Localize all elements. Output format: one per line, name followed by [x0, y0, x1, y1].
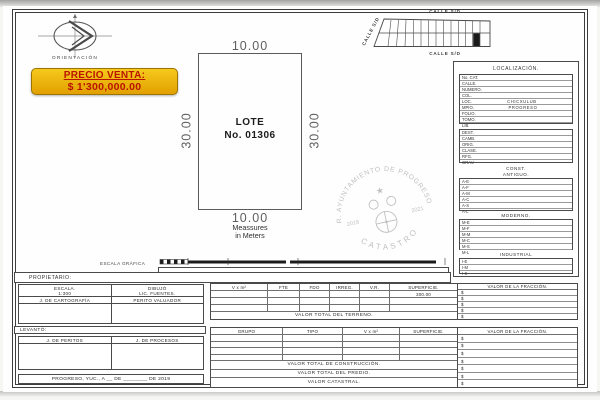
field-label: A-E	[460, 179, 469, 184]
seal-year-left: 2018	[347, 220, 360, 228]
seal-star-icon: ★	[375, 185, 385, 196]
fraction-row: $	[458, 314, 577, 319]
table-cell	[360, 291, 390, 297]
field-label: CALLE.	[460, 81, 476, 86]
fraction-row: $	[458, 373, 577, 381]
table-cell	[400, 342, 457, 348]
table-cell	[211, 291, 268, 297]
orientation-label: ORIENTACIÓN	[38, 56, 112, 61]
lot-title-line1: LOTE	[198, 117, 302, 130]
seal-emblem-icon	[368, 196, 402, 235]
field-label: M-E	[460, 220, 470, 225]
construction-table: GRUPO TIPO V x m² SUPERFICIE.	[210, 327, 578, 388]
industrial-title: INDUSTRIAL	[453, 252, 579, 257]
signature-space	[19, 344, 112, 369]
table-cell	[400, 355, 457, 361]
field-label: M-M	[460, 232, 470, 237]
field-label: NUMERO.	[460, 87, 482, 92]
escala-value: 1:300	[19, 291, 112, 296]
price-banner-amount: $ 1'300,000.00	[68, 81, 142, 93]
currency-sign: $	[458, 302, 464, 307]
field-label: RFG.	[460, 154, 472, 159]
field-label: ORIG.	[460, 142, 474, 147]
currency-sign: $	[458, 351, 464, 356]
admin-fields: DEST. CAMB. ORIG. CLASE. RFG. GRAV.	[459, 129, 573, 163]
table-cell	[300, 298, 330, 304]
table-cell	[268, 298, 300, 304]
svg-text:CATASTRO: CATASTRO	[358, 224, 423, 257]
field-label: M-F	[460, 226, 469, 231]
fraction-row: $	[458, 350, 577, 358]
table-cell	[300, 291, 330, 297]
table-cell	[211, 335, 283, 341]
signature-space	[112, 304, 204, 323]
units-note-line2: in Meters	[198, 232, 302, 240]
currency-sign: $	[458, 290, 464, 295]
table-cell	[343, 355, 400, 361]
levanto-label: LEVANTÓ:	[15, 328, 47, 333]
currency-sign: $	[458, 296, 464, 301]
seal-arc-bottom-text: CATASTRO	[358, 224, 423, 257]
currency-sign: $	[458, 359, 464, 364]
table-cell	[211, 355, 283, 361]
units-note: Meassures in Meters	[198, 224, 302, 241]
fraction-row: $	[458, 343, 577, 351]
currency-sign: $	[458, 336, 464, 341]
table-cell	[211, 342, 283, 348]
col-header: FDO	[300, 284, 330, 290]
antiguo-title: ANTIGUO.	[453, 172, 579, 177]
table-cell	[400, 335, 457, 341]
field-label: A-C	[460, 197, 469, 202]
field-label: A-M	[460, 191, 470, 196]
industrial-fields: I-E I-M I-S	[459, 258, 573, 274]
field-label: TOMO.	[460, 117, 476, 122]
signatories-table: J. DE PERITOS J. DE PROCESOS	[18, 336, 204, 370]
fraction-row: $	[458, 358, 577, 366]
table-cell	[283, 348, 343, 354]
currency-sign: $	[458, 308, 464, 313]
field-label: I-M	[460, 265, 468, 270]
field-label: I-E	[460, 259, 467, 264]
table-cell	[343, 335, 400, 341]
credits-table: ESCALA. DIBUJÓ 1:300 LIC. FUENTES. J. DE…	[18, 284, 204, 324]
currency-sign: $	[458, 381, 464, 386]
loc-row: I-S	[460, 271, 572, 276]
lot-dim-top: 10.00	[198, 39, 302, 53]
lot-dim-left: 30.00	[180, 107, 193, 155]
table-cell	[330, 305, 360, 311]
field-label: I-S	[460, 271, 467, 276]
highlighted-lot-cell	[473, 33, 480, 46]
procesos-label: J. DE PROCESOS	[112, 337, 204, 343]
field-label: LOC.	[460, 99, 472, 104]
block-map: CALLE S/D CALLE S/D CALLE S/D	[350, 2, 498, 58]
table-cell	[283, 342, 343, 348]
field-label: FOLIO.	[460, 111, 476, 116]
table-cell	[268, 291, 300, 297]
terrain-total-label: VALOR TOTAL DEL TERRENO.	[211, 312, 457, 319]
terrain-table: V x m² FTE FDO IRREG. V.R. SUPERFICIE. 3…	[210, 283, 578, 320]
col-header: V x m²	[343, 328, 400, 334]
field-label: A-F	[460, 185, 469, 190]
field-label: LIB.	[460, 123, 469, 128]
currency-sign: $	[458, 374, 464, 379]
owner-row: PROPIETARIO:	[14, 272, 451, 283]
field-label: CLASE.	[460, 148, 477, 153]
table-cell	[390, 305, 457, 311]
table-cell	[330, 298, 360, 304]
fraction-row: $	[458, 380, 577, 387]
const-title: CONST.	[453, 166, 579, 171]
price-banner: PRECIO VENTA: $ 1'300,000.00	[31, 68, 178, 95]
col-header: SUPERFICIE.	[390, 284, 457, 290]
table-cell	[283, 355, 343, 361]
field-label: A-S	[460, 203, 469, 208]
table-cell	[400, 348, 457, 354]
field-value: CHICXULUB	[472, 99, 572, 104]
currency-sign: $	[458, 314, 464, 319]
lot-title: LOTE No. 01306	[198, 117, 302, 142]
table-cell	[343, 342, 400, 348]
field-label: CAMB.	[460, 136, 475, 141]
owner-label: PROPIETARIO:	[15, 275, 72, 281]
table-cell	[360, 305, 390, 311]
street-label-top: CALLE S/D	[429, 9, 460, 14]
levanto-row: LEVANTÓ:	[14, 326, 206, 334]
signature-space	[19, 304, 112, 323]
table-cell	[268, 305, 300, 311]
fraction-header: VALOR DE LA FRACCIÓN.	[458, 328, 577, 335]
col-header: FTE	[268, 284, 300, 290]
lot-dim-right: 30.00	[308, 107, 321, 155]
field-label: No. CAT.	[460, 75, 478, 80]
localization-title: LOCALIZACIÓN.	[453, 66, 579, 72]
localization-fields: No. CAT. CALLE. NUMERO. COL. LOC.CHICXUL…	[459, 74, 573, 124]
col-header: V.R.	[360, 284, 390, 290]
moderno-fields: M-E M-F M-M M-C M-S M-L	[459, 219, 573, 250]
currency-sign: $	[458, 343, 464, 348]
table-cell	[283, 335, 343, 341]
col-header: V x m²	[211, 284, 268, 290]
col-header: IRREG.	[330, 284, 360, 290]
table-cell	[390, 298, 457, 304]
cartografia-label: J. DE CARTOGRAFÍA	[19, 297, 112, 303]
perito-label: PERITO VALUADOR	[112, 297, 204, 303]
lot-title-line2: No. 01306	[198, 130, 302, 143]
table-cell	[360, 298, 390, 304]
superficie-value: 300.00	[390, 291, 457, 297]
street-label-left: CALLE S/D	[361, 16, 380, 46]
compass-icon	[36, 12, 114, 58]
field-label: M-S	[460, 244, 470, 249]
table-cell	[211, 305, 268, 311]
col-header: GRUPO	[211, 328, 283, 334]
table-cell	[211, 348, 283, 354]
table-cell	[211, 298, 268, 304]
date-line: PROGRESO, YUC., A __ DE ________ DE 2019	[52, 377, 170, 382]
seal-year-right: 2021	[411, 206, 424, 214]
graphic-scale-label: ESCALA GRÁFICA	[100, 261, 158, 266]
loc-row: LIB.	[460, 123, 572, 128]
field-value: PROGRESO	[474, 105, 572, 110]
catastro-seal: R. AYUNTAMIENTO DE PROGRESO CATASTRO 201…	[326, 156, 444, 274]
antiguo-fields: A-E A-F A-M A-C A-S A-L	[459, 178, 573, 211]
col-header: TIPO	[283, 328, 343, 334]
catastral-value-label: VALOR CATASTRAL.	[211, 378, 457, 387]
price-banner-title: PRECIO VENTA:	[64, 70, 146, 81]
field-label: DEST.	[460, 130, 474, 135]
street-label-bottom: CALLE S/D	[429, 51, 460, 56]
field-label: COL.	[460, 93, 472, 98]
moderno-title: MODERNO.	[453, 213, 579, 218]
field-label: M-C	[460, 238, 470, 243]
field-label: MPIO.	[460, 105, 474, 110]
table-cell	[300, 305, 330, 311]
peritos-label: J. DE PERITOS	[19, 337, 112, 343]
predio-total-label: VALOR TOTAL DEL PREDIO.	[211, 370, 457, 379]
col-header: SUPERFICIE.	[400, 328, 457, 334]
fraction-row: $	[458, 335, 577, 343]
fraction-row: $	[458, 365, 577, 373]
table-cell	[330, 291, 360, 297]
date-row: PROGRESO, YUC., A __ DE ________ DE 2019	[18, 374, 204, 384]
field-label: GRAV.	[460, 160, 474, 165]
construction-total-label: VALOR TOTAL DE CONSTRUCCIÓN.	[211, 361, 457, 370]
signature-space	[112, 344, 204, 369]
loc-row: GRAV.	[460, 160, 572, 165]
currency-sign: $	[458, 366, 464, 371]
dibujo-value: LIC. FUENTES.	[112, 291, 204, 296]
table-cell	[343, 348, 400, 354]
